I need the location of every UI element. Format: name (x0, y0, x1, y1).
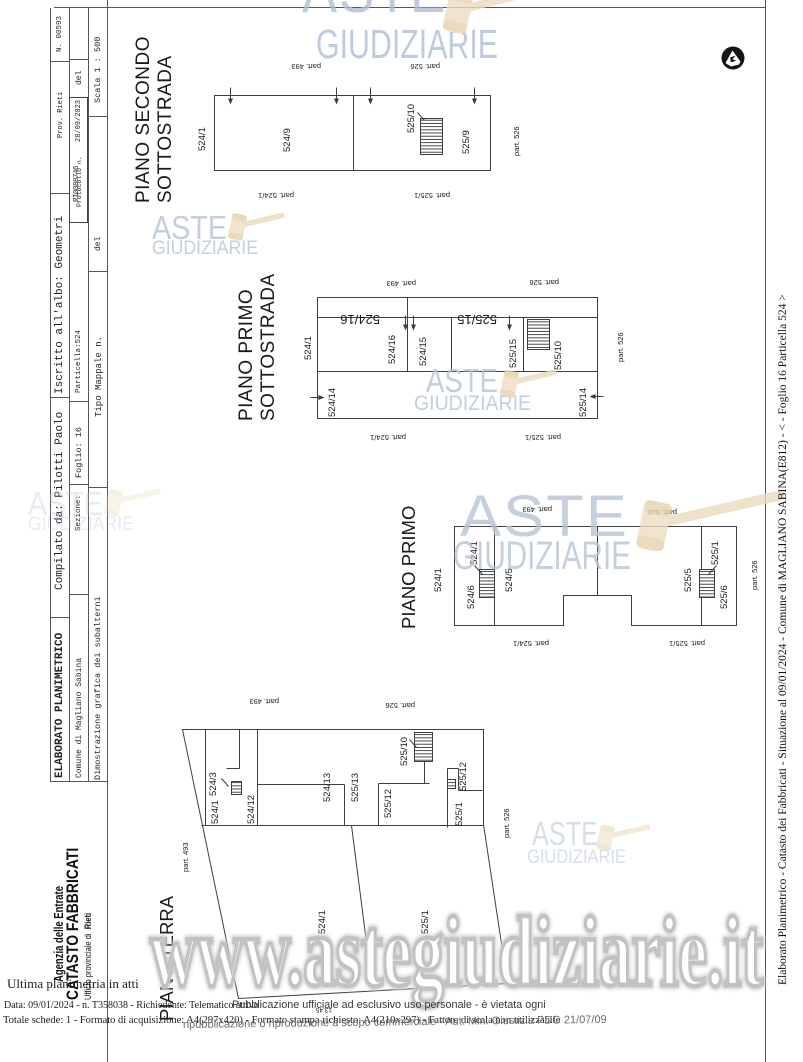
svg-text:www.astegiudiziarie.it: www.astegiudiziarie.it (150, 896, 763, 1007)
svg-text:GIUDIZIARIE: GIUDIZIARIE (453, 534, 631, 578)
svg-text:GIUDIZIARIE: GIUDIZIARIE (28, 514, 134, 535)
svg-text:GIUDIZIARIE: GIUDIZIARIE (152, 238, 258, 259)
svg-text:GIUDIZIARIE: GIUDIZIARIE (316, 21, 498, 67)
svg-text:GIUDIZIARIE: GIUDIZIARIE (527, 847, 626, 868)
